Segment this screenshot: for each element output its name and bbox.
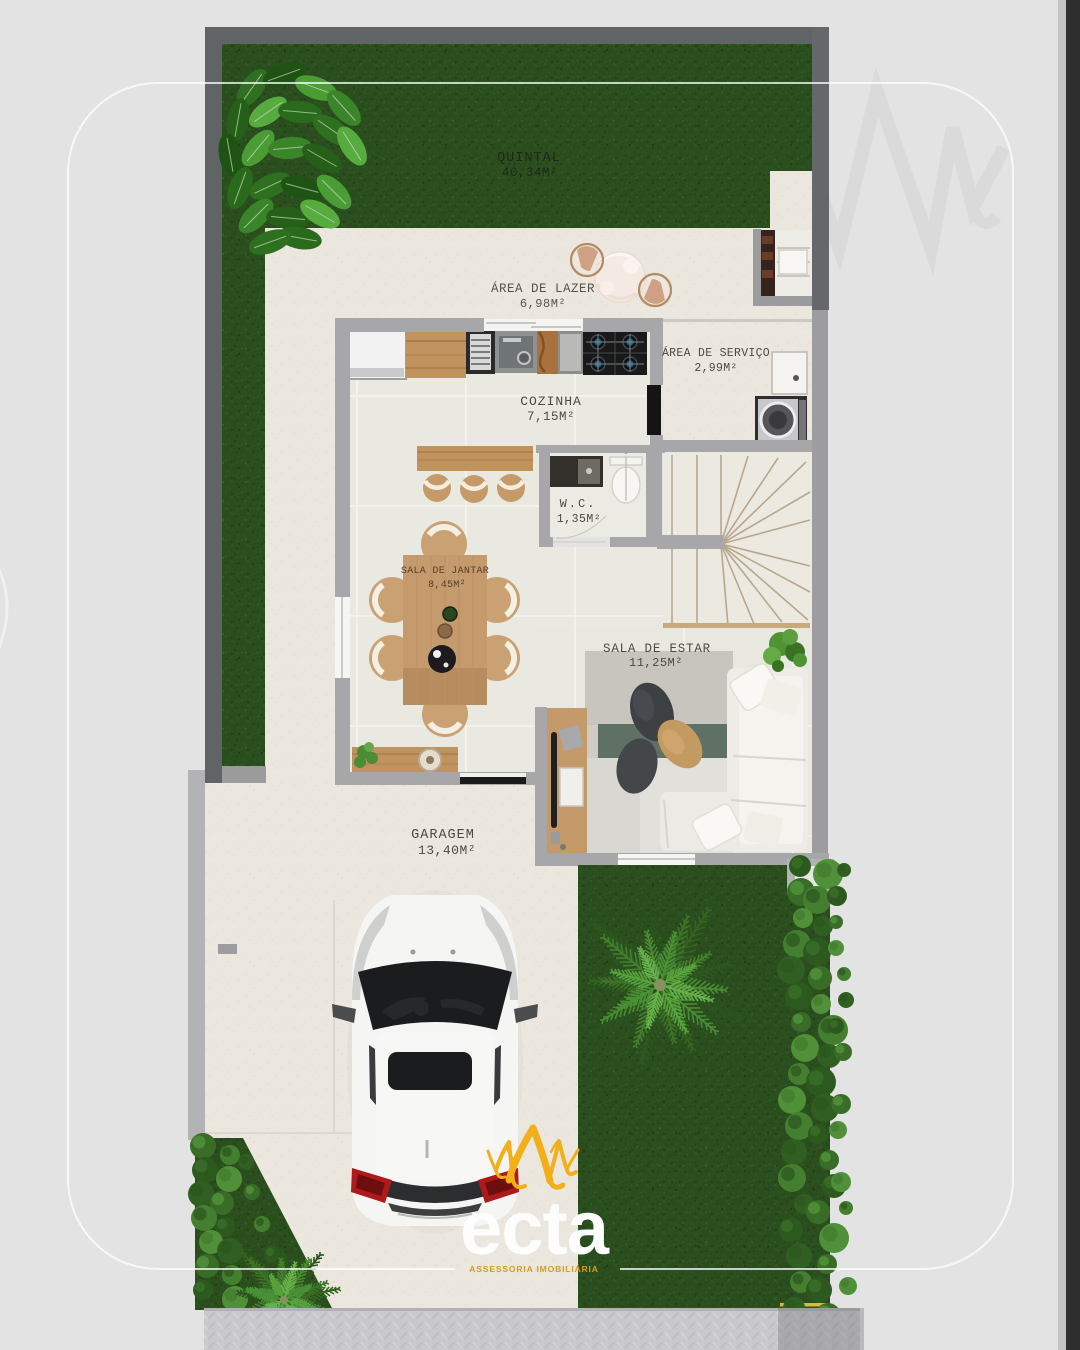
svg-text:ÁREA DE SERVIÇO: ÁREA DE SERVIÇO	[662, 346, 770, 360]
svg-text:2,99M²: 2,99M²	[694, 362, 737, 375]
svg-text:ÁREA DE LAZER: ÁREA DE LAZER	[491, 281, 595, 296]
svg-text:SALA DE ESTAR: SALA DE ESTAR	[603, 642, 711, 656]
svg-text:1,35M²: 1,35M²	[557, 513, 601, 526]
svg-text:W.C.: W.C.	[560, 497, 597, 511]
svg-text:QUINTAL: QUINTAL	[497, 151, 561, 166]
svg-text:ASSESSORIA IMOBILIÁRIA: ASSESSORIA IMOBILIÁRIA	[469, 1264, 599, 1274]
svg-text:40,34M²: 40,34M²	[502, 166, 558, 180]
svg-text:8,45M²: 8,45M²	[428, 580, 466, 591]
svg-text:7,15M²: 7,15M²	[527, 410, 575, 424]
svg-text:13,40M²: 13,40M²	[418, 843, 476, 858]
svg-text:SALA DE JANTAR: SALA DE JANTAR	[401, 566, 489, 577]
svg-text:COZINHA: COZINHA	[520, 394, 582, 409]
svg-text:GARAGEM: GARAGEM	[411, 828, 475, 843]
svg-text:6,98M²: 6,98M²	[520, 297, 566, 311]
svg-text:11,25M²: 11,25M²	[629, 656, 683, 670]
svg-text:ecta: ecta	[460, 1186, 610, 1271]
